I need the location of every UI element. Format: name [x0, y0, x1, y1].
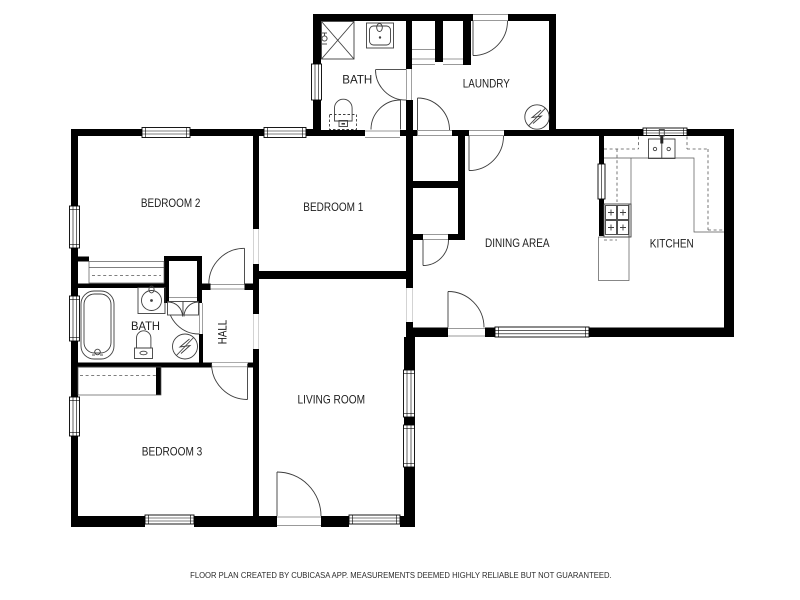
svg-text:HALL: HALL [216, 319, 230, 344]
svg-text:LAUNDRY: LAUNDRY [463, 77, 510, 91]
svg-text:BATH: BATH [342, 72, 372, 86]
svg-text:LIVING ROOM: LIVING ROOM [298, 393, 366, 407]
svg-text:BATH: BATH [131, 319, 160, 333]
svg-text:BEDROOM 3: BEDROOM 3 [142, 445, 203, 459]
svg-text:DINING AREA: DINING AREA [485, 236, 550, 250]
svg-text:KITCHEN: KITCHEN [650, 236, 694, 250]
svg-text:FLOOR PLAN CREATED BY CUBICASA: FLOOR PLAN CREATED BY CUBICASA APP. MEAS… [190, 571, 612, 580]
svg-text:BEDROOM 2: BEDROOM 2 [141, 196, 201, 210]
svg-text:BEDROOM 1: BEDROOM 1 [303, 200, 363, 214]
